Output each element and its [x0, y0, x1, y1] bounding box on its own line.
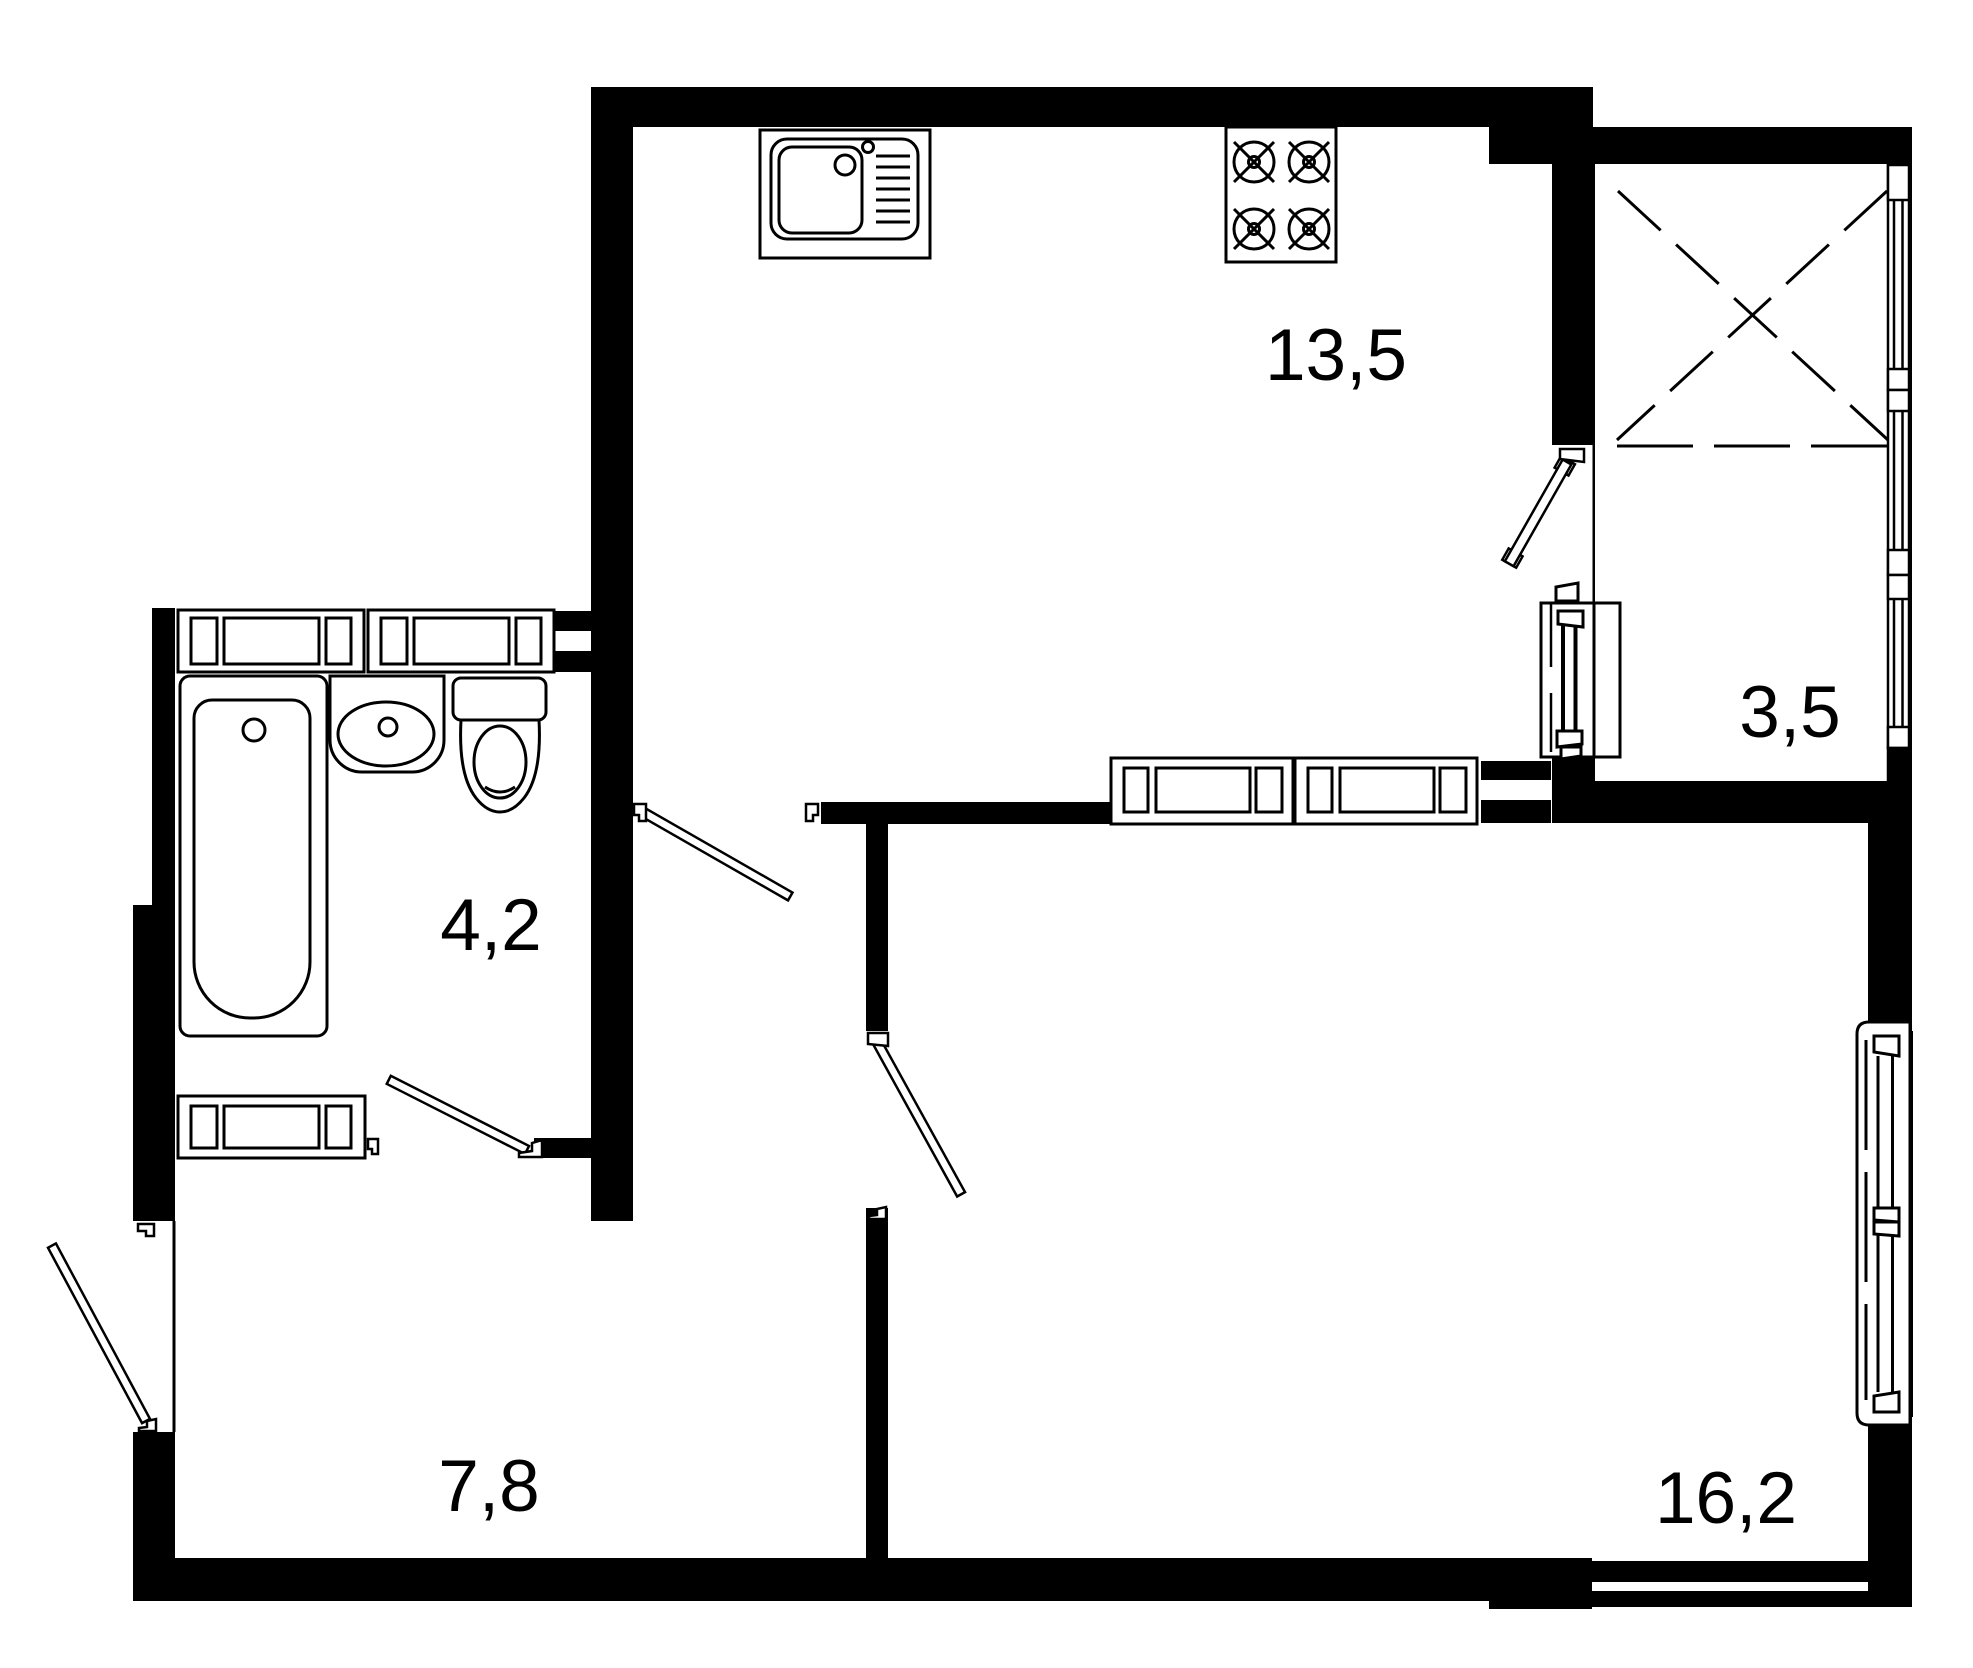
svg-text:7,8: 7,8 — [438, 1446, 539, 1527]
svg-text:13,5: 13,5 — [1265, 315, 1407, 396]
svg-text:3,5: 3,5 — [1739, 672, 1840, 753]
svg-text:4,2: 4,2 — [440, 885, 541, 966]
svg-text:16,2: 16,2 — [1655, 1458, 1797, 1539]
